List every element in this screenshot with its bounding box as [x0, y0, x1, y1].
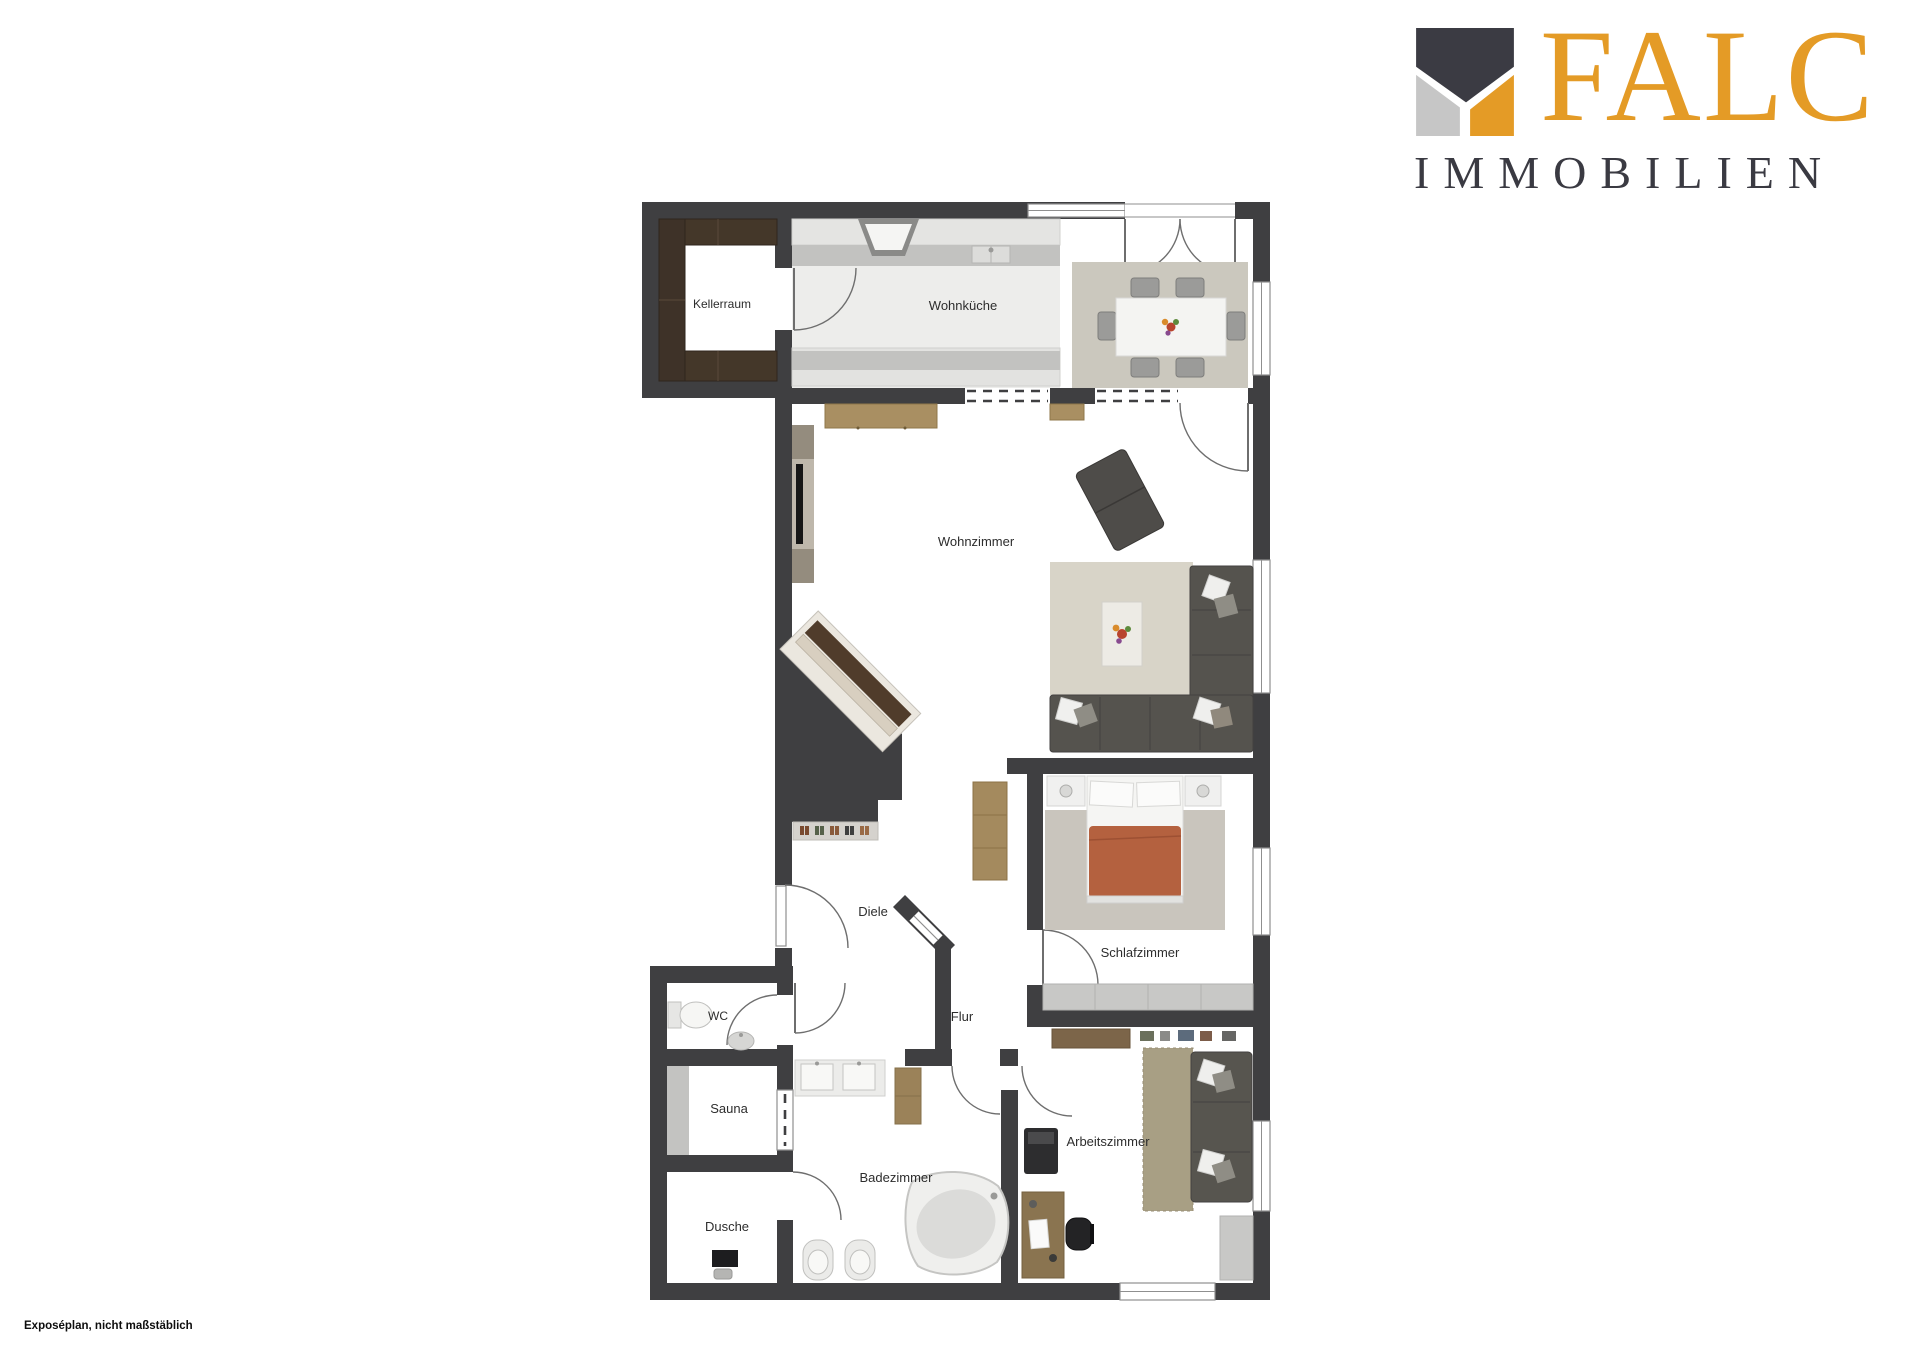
study-window-right [1253, 1121, 1270, 1211]
shower-room-door [793, 1172, 841, 1220]
pillow [1137, 781, 1181, 806]
kitchen-island [792, 348, 1060, 386]
tv-icon [796, 464, 803, 544]
room-label-wohnzimmer: Wohnzimmer [938, 534, 1015, 549]
room-label-kellerraum: Kellerraum [693, 297, 751, 311]
living-sideboard [825, 404, 1084, 430]
office-chair [1066, 1218, 1092, 1250]
room-label-schlafzimmer: Schlafzimmer [1101, 945, 1180, 960]
bedroom-wardrobe [1043, 984, 1253, 1010]
room-label-wc: WC [708, 1009, 728, 1023]
study-door [1022, 1066, 1072, 1116]
room-label-badezimmer: Badezimmer [860, 1170, 934, 1185]
study-sofa [1191, 1052, 1252, 1202]
dining-set [1072, 262, 1248, 388]
hall-corridor-door [795, 983, 845, 1033]
room-label-sauna: Sauna [710, 1101, 748, 1116]
study-dresser [1052, 1029, 1236, 1048]
sauna-bench [667, 1066, 689, 1155]
copier [1024, 1128, 1058, 1174]
entrance-door [776, 885, 848, 948]
bedroom-door [1043, 930, 1098, 985]
room-label-wohnkueche: Wohnküche [929, 298, 997, 313]
wc-sink [728, 1032, 754, 1050]
bath-toilet [803, 1240, 833, 1280]
kitchen-sink [972, 246, 1010, 263]
living-rug [1050, 562, 1193, 695]
room-label-diele: Diele [858, 904, 888, 919]
bathroom-door [952, 1066, 1000, 1114]
bedroom-window-right [1253, 848, 1270, 935]
lamp-icon [1197, 785, 1209, 797]
sauna-glass-door [777, 1090, 793, 1150]
window-cabinet [1220, 1216, 1253, 1280]
kitchen-counter [792, 219, 1060, 266]
lamp-icon [1060, 785, 1072, 797]
bath-bidet [845, 1240, 875, 1280]
wc-toilet [668, 1002, 712, 1028]
dining-living-door [1180, 388, 1248, 471]
study-window-bottom [1120, 1283, 1215, 1300]
bath-vanity [795, 1060, 885, 1096]
pillow [1089, 781, 1133, 807]
bathtub [905, 1172, 1008, 1275]
floor-plan: Kellerraum Wohnküche Wohnzimmer Diele WC… [0, 0, 1920, 1358]
tv-unit [792, 425, 814, 583]
room-label-flur: Flur [951, 1009, 974, 1024]
room-label-arbeitszimmer: Arbeitszimmer [1066, 1134, 1150, 1149]
hall-wardrobe [973, 782, 1007, 880]
bath-cabinet [895, 1068, 921, 1124]
study-rug [1143, 1048, 1193, 1211]
dining-window-right [1253, 282, 1270, 375]
lounge-chair [1075, 448, 1166, 552]
shower [712, 1250, 738, 1279]
kitchen-top-window [1028, 204, 1125, 217]
living-window-right [1253, 560, 1270, 693]
shoe-rack [793, 822, 878, 840]
room-label-dusche: Dusche [705, 1219, 749, 1234]
page: FALC IMMOBILIEN Exposéplan, nicht maßstä… [0, 0, 1920, 1358]
desk [1022, 1192, 1064, 1278]
flur-diagonal-door [914, 916, 938, 940]
